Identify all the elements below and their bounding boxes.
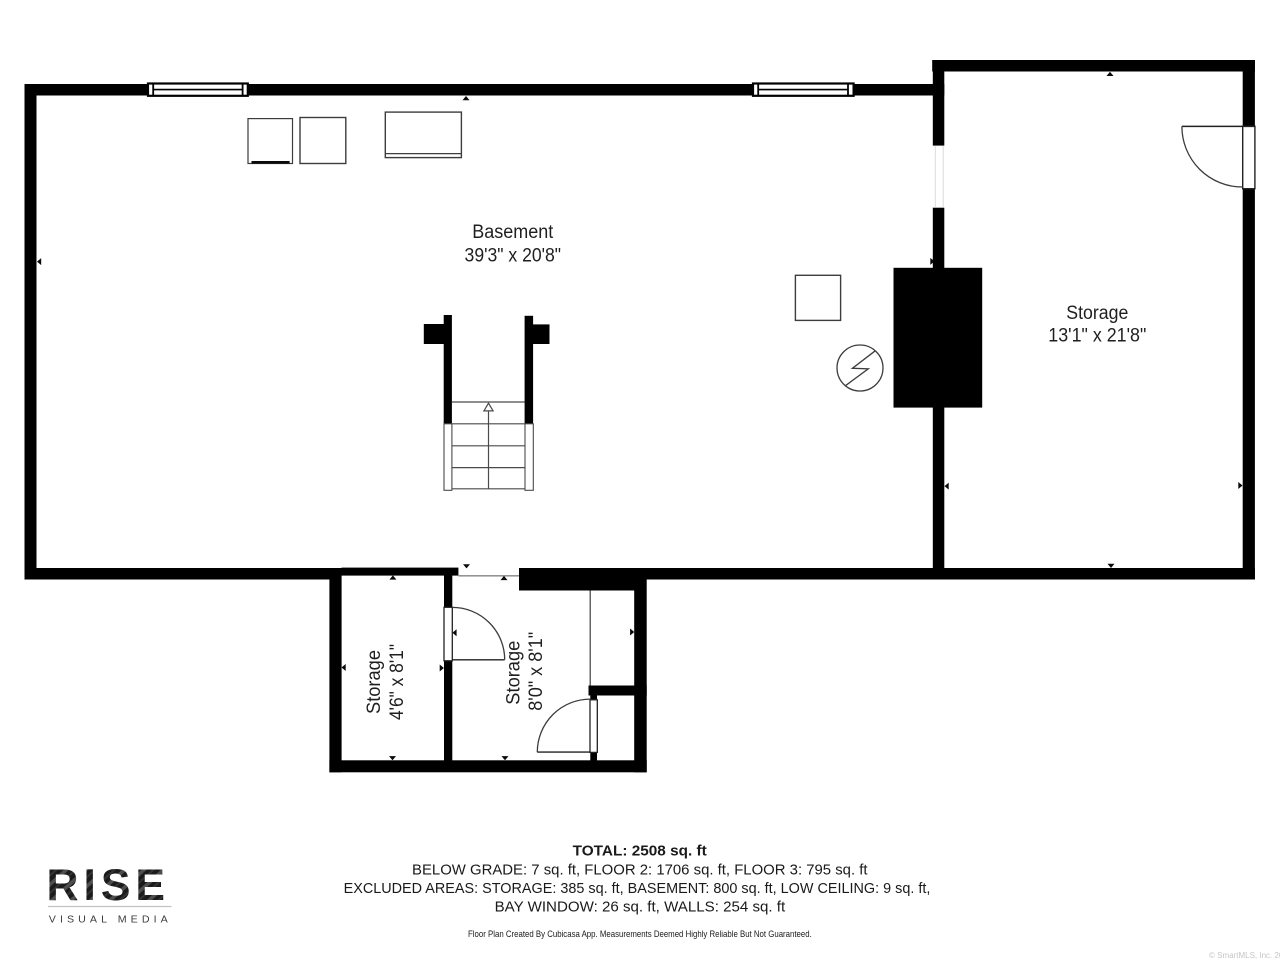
svg-text:EXCLUDED AREAS: STORAGE: 385 s: EXCLUDED AREAS: STORAGE: 385 sq. ft, BAS… (344, 881, 931, 897)
svg-text:Storage: Storage (1066, 303, 1128, 324)
svg-text:Storage: Storage (364, 650, 385, 714)
svg-text:RISE: RISE (47, 861, 171, 910)
svg-text:BAY WINDOW: 26 sq. ft, WALLS:: BAY WINDOW: 26 sq. ft, WALLS: 254 sq. ft (495, 899, 786, 915)
svg-text:BELOW GRADE: 7 sq. ft, FLOOR 2: BELOW GRADE: 7 sq. ft, FLOOR 2: 1706 sq.… (412, 862, 868, 878)
svg-text:© SmartMLS, Inc. 2025: © SmartMLS, Inc. 2025 (1209, 951, 1280, 960)
svg-text:39'3" x 20'8": 39'3" x 20'8" (465, 245, 562, 266)
svg-text:13'1" x 21'8": 13'1" x 21'8" (1048, 326, 1146, 347)
svg-text:4'6" x 8'1": 4'6" x 8'1" (387, 644, 408, 720)
svg-text:8'0" x 8'1": 8'0" x 8'1" (526, 632, 547, 711)
svg-text:VISUAL MEDIA: VISUAL MEDIA (49, 914, 172, 926)
svg-text:Basement: Basement (472, 222, 554, 243)
svg-text:Floor Plan Created By Cubicasa: Floor Plan Created By Cubicasa App. Meas… (468, 929, 812, 940)
svg-text:TOTAL: 2508 sq. ft: TOTAL: 2508 sq. ft (573, 844, 707, 860)
svg-text:Storage: Storage (504, 641, 525, 705)
